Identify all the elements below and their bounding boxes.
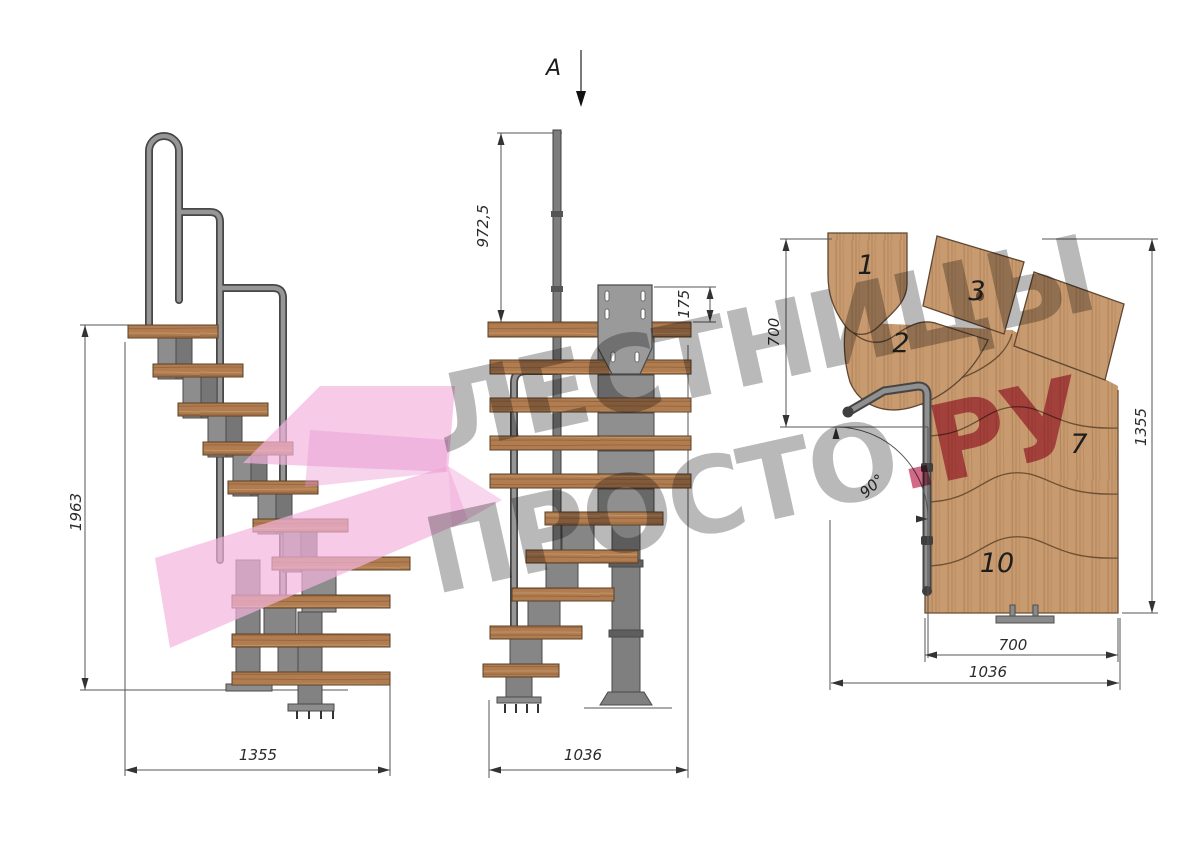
dim-front-rail-height: 972,5 [474, 196, 492, 256]
dim-side-width: 1355 [228, 746, 288, 764]
dim-plan-total-width: 1036 [958, 663, 1018, 681]
dim-plan-total-depth: 1355 [1132, 397, 1150, 457]
dim-front-width: 1036 [553, 746, 613, 764]
dim-plan-tread-width: 700 [983, 636, 1043, 654]
technical-drawing-canvas: A 1963 1355 972,5 175 1036 700 1355 90° … [0, 0, 1200, 849]
tread-number-10: 10 [975, 548, 1019, 579]
anchor-bolts [297, 711, 333, 719]
section-marker-label: A [546, 56, 561, 81]
section-arrow [576, 50, 586, 107]
dim-side-height: 1963 [67, 482, 85, 542]
